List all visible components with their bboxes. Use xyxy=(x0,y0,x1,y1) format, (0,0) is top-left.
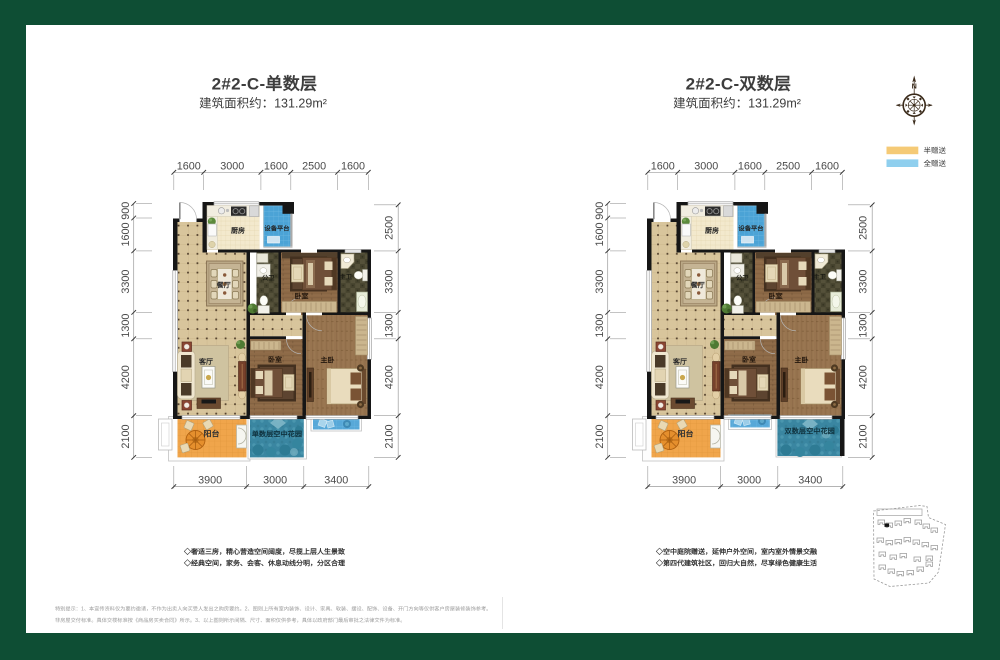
svg-text:4200: 4200 xyxy=(591,365,607,389)
svg-text:1600: 1600 xyxy=(651,157,675,173)
svg-text:◇奢适三房，精心营造空间阔度，尽揽上层人生景致: ◇奢适三房，精心营造空间阔度，尽揽上层人生景致 xyxy=(183,547,346,557)
svg-text:2100: 2100 xyxy=(381,425,397,449)
svg-text:公卫: 公卫 xyxy=(736,273,749,282)
svg-text:餐厅: 餐厅 xyxy=(216,281,231,291)
svg-text:1600: 1600 xyxy=(117,222,133,246)
svg-text:建筑面积约：131.29m²: 建筑面积约：131.29m² xyxy=(673,93,801,112)
svg-text:1300: 1300 xyxy=(591,314,607,338)
svg-text:2100: 2100 xyxy=(591,425,607,449)
svg-text:设备平台: 设备平台 xyxy=(264,224,290,233)
svg-text:客厅: 客厅 xyxy=(198,357,213,367)
svg-text:建筑面积约：131.29m²: 建筑面积约：131.29m² xyxy=(199,93,327,112)
svg-text:1300: 1300 xyxy=(381,314,397,338)
svg-text:2#2-C-双数层: 2#2-C-双数层 xyxy=(686,70,792,95)
svg-text:2500: 2500 xyxy=(381,216,397,240)
svg-text:2100: 2100 xyxy=(855,425,871,449)
svg-text:1600: 1600 xyxy=(738,157,762,173)
svg-text:1600: 1600 xyxy=(177,157,201,173)
svg-text:3300: 3300 xyxy=(591,270,607,294)
svg-text:3400: 3400 xyxy=(798,471,822,487)
svg-text:半赠送: 半赠送 xyxy=(924,145,947,156)
svg-text:非房屋交付标准。具体交楼标准按《商品房买卖合同》所示。3、以: 非房屋交付标准。具体交楼标准按《商品房买卖合同》所示。3、以上图则所示间隔、尺寸… xyxy=(55,617,405,624)
svg-text:2500: 2500 xyxy=(302,157,326,173)
svg-text:3000: 3000 xyxy=(694,157,718,173)
svg-text:1600: 1600 xyxy=(815,157,839,173)
svg-text:4200: 4200 xyxy=(381,365,397,389)
svg-text:主卫: 主卫 xyxy=(814,272,827,281)
svg-text:N: N xyxy=(912,81,917,91)
svg-text:1300: 1300 xyxy=(855,314,871,338)
svg-text:1300: 1300 xyxy=(117,314,133,338)
svg-text:全赠送: 全赠送 xyxy=(924,158,947,169)
svg-text:设备平台: 设备平台 xyxy=(738,224,764,233)
svg-text:双数层空中花园: 双数层空中花园 xyxy=(785,427,835,437)
svg-text:主卧: 主卧 xyxy=(795,356,809,366)
svg-text:阳台: 阳台 xyxy=(678,429,694,440)
svg-text:3900: 3900 xyxy=(198,471,222,487)
svg-text:厨房: 厨房 xyxy=(705,226,719,236)
svg-text:4200: 4200 xyxy=(855,365,871,389)
svg-text:餐厅: 餐厅 xyxy=(690,281,705,291)
svg-text:阳台: 阳台 xyxy=(204,429,220,440)
svg-text:◇第四代建筑社区，回归大自然，尽享绿色健康生活: ◇第四代建筑社区，回归大自然，尽享绿色健康生活 xyxy=(655,558,817,568)
svg-text:2500: 2500 xyxy=(855,216,871,240)
svg-text:卧室: 卧室 xyxy=(268,355,282,365)
svg-text:3000: 3000 xyxy=(737,471,761,487)
svg-text:2500: 2500 xyxy=(776,157,800,173)
svg-text:2#2-C-单数层: 2#2-C-单数层 xyxy=(212,70,318,95)
svg-text:900: 900 xyxy=(591,202,607,220)
svg-text:1600: 1600 xyxy=(264,157,288,173)
svg-text:3300: 3300 xyxy=(117,270,133,294)
svg-text:客厅: 客厅 xyxy=(672,357,687,367)
svg-text:◇空中庭院赠送，延伸户外空间，室内室外情景交融: ◇空中庭院赠送，延伸户外空间，室内室外情景交融 xyxy=(655,547,817,557)
svg-text:3400: 3400 xyxy=(324,471,348,487)
svg-text:卧室: 卧室 xyxy=(769,292,783,302)
svg-text:厨房: 厨房 xyxy=(231,226,245,236)
svg-text:2100: 2100 xyxy=(117,425,133,449)
svg-text:特别提示：1、本宣传资料仅为要约邀请，不作为出卖人向买受人发: 特别提示：1、本宣传资料仅为要约邀请，不作为出卖人向买受人发出之购房要约。2、图… xyxy=(55,606,491,613)
svg-text:单数层空中花园: 单数层空中花园 xyxy=(252,430,302,440)
svg-text:3300: 3300 xyxy=(381,270,397,294)
svg-text:3300: 3300 xyxy=(855,270,871,294)
svg-text:卧室: 卧室 xyxy=(295,292,309,302)
svg-text:公卫: 公卫 xyxy=(262,273,275,282)
svg-text:◇经典空间，家务、会客、休息动线分明，分区合理: ◇经典空间，家务、会客、休息动线分明，分区合理 xyxy=(183,558,345,568)
svg-text:4200: 4200 xyxy=(117,365,133,389)
svg-text:主卫: 主卫 xyxy=(340,272,353,281)
svg-text:主卧: 主卧 xyxy=(321,356,335,366)
svg-text:卧室: 卧室 xyxy=(742,355,756,365)
svg-text:3000: 3000 xyxy=(220,157,244,173)
svg-text:3900: 3900 xyxy=(672,471,696,487)
svg-text:900: 900 xyxy=(117,202,133,220)
svg-text:1600: 1600 xyxy=(341,157,365,173)
svg-text:1600: 1600 xyxy=(591,222,607,246)
svg-text:3000: 3000 xyxy=(263,471,287,487)
